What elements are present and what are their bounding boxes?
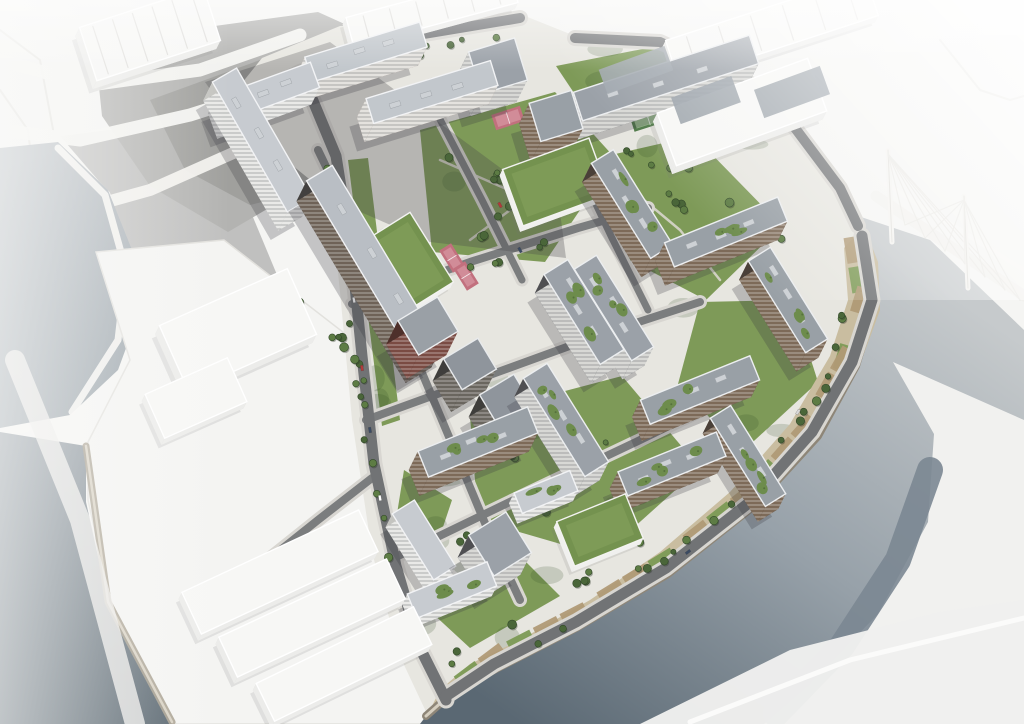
aerial-masterplan-render [0,0,1024,724]
masterplan-render-stage [0,0,1024,724]
